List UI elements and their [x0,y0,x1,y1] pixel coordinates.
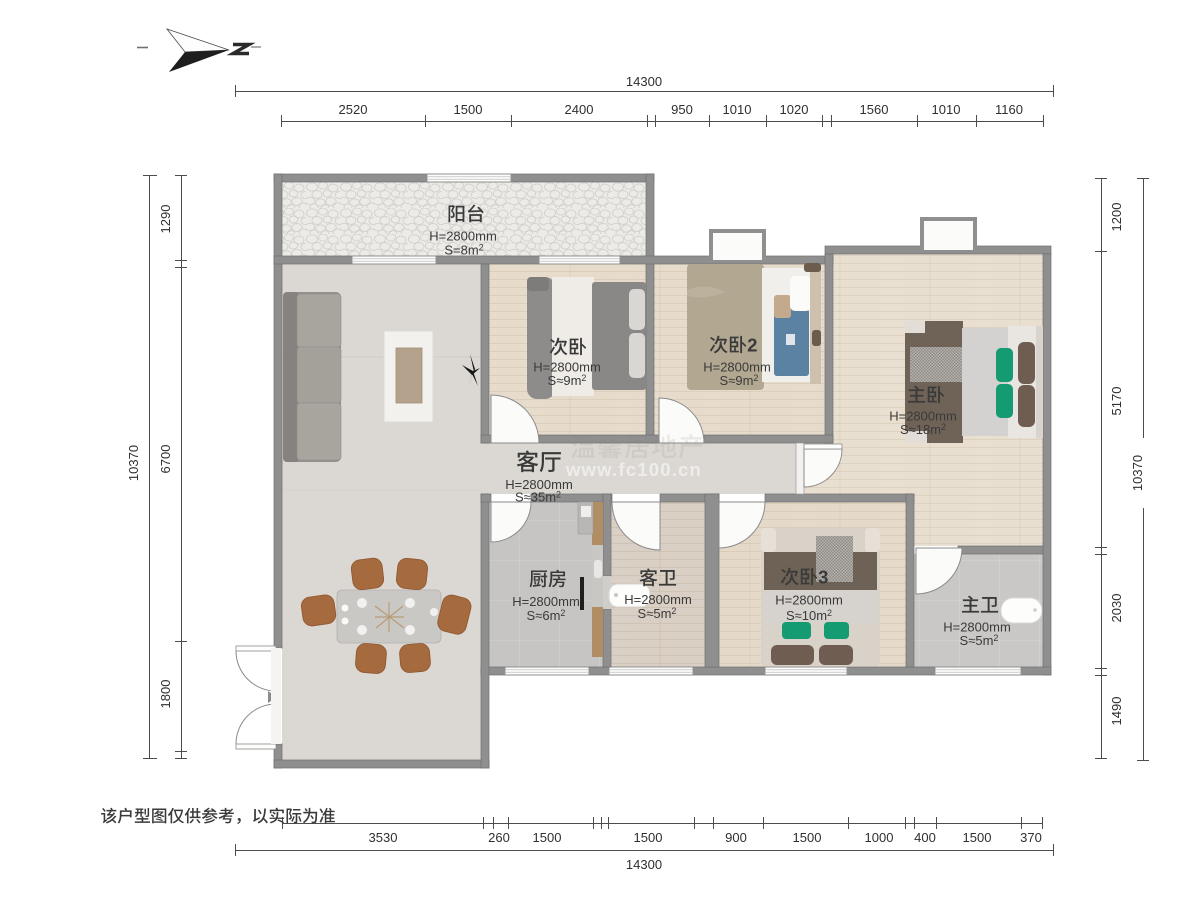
svg-text:H=2800mm: H=2800mm [429,229,497,244]
svg-text:S≈6m2: S≈6m2 [527,608,566,623]
svg-text:900: 900 [725,830,747,845]
svg-text:14300: 14300 [626,857,662,872]
svg-text:S≈5m2: S≈5m2 [960,633,999,648]
svg-text:1200: 1200 [1109,203,1124,232]
svg-text:950: 950 [671,102,693,117]
svg-text:H=2800mm: H=2800mm [512,594,580,609]
svg-text:3530: 3530 [369,830,398,845]
svg-text:S≈18m2: S≈18m2 [900,422,946,437]
svg-text:1500: 1500 [634,830,663,845]
svg-text:400: 400 [914,830,936,845]
svg-text:1020: 1020 [780,102,809,117]
svg-text:370: 370 [1020,830,1042,845]
svg-text:6700: 6700 [158,445,173,474]
svg-text:S≈9m2: S≈9m2 [548,373,587,388]
svg-text:1560: 1560 [860,102,889,117]
svg-text:S=8m2: S=8m2 [444,243,483,258]
svg-text:1490: 1490 [1109,697,1124,726]
svg-text:14300: 14300 [626,74,662,89]
svg-text:2: 2 [747,335,757,356]
svg-text:260: 260 [488,830,510,845]
svg-text:1500: 1500 [793,830,822,845]
svg-text:2030: 2030 [1109,594,1124,623]
svg-text:H=2800mm: H=2800mm [624,592,692,607]
svg-text:1500: 1500 [454,102,483,117]
svg-text:3: 3 [818,567,828,588]
svg-text:S≈10m2: S≈10m2 [786,608,832,623]
svg-text:S≈35m2: S≈35m2 [515,490,561,505]
svg-text:1010: 1010 [932,102,961,117]
svg-text:1160: 1160 [995,102,1023,117]
svg-text:10370: 10370 [126,445,141,481]
svg-text:www.fc100.cn: www.fc100.cn [565,459,702,480]
svg-text:1500: 1500 [963,830,992,845]
svg-text:2520: 2520 [339,102,368,117]
svg-text:10370: 10370 [1130,455,1145,491]
svg-text:1500: 1500 [533,830,562,845]
svg-text:5170: 5170 [1109,387,1124,416]
svg-text:S≈5m2: S≈5m2 [638,606,677,621]
svg-text:1800: 1800 [158,680,173,709]
svg-text:1290: 1290 [158,205,173,234]
svg-text:2400: 2400 [565,102,594,117]
svg-text:H=2800mm: H=2800mm [775,593,843,608]
svg-text:1010: 1010 [723,102,752,117]
svg-text:S≈9m2: S≈9m2 [720,373,759,388]
svg-text:1000: 1000 [865,830,894,845]
